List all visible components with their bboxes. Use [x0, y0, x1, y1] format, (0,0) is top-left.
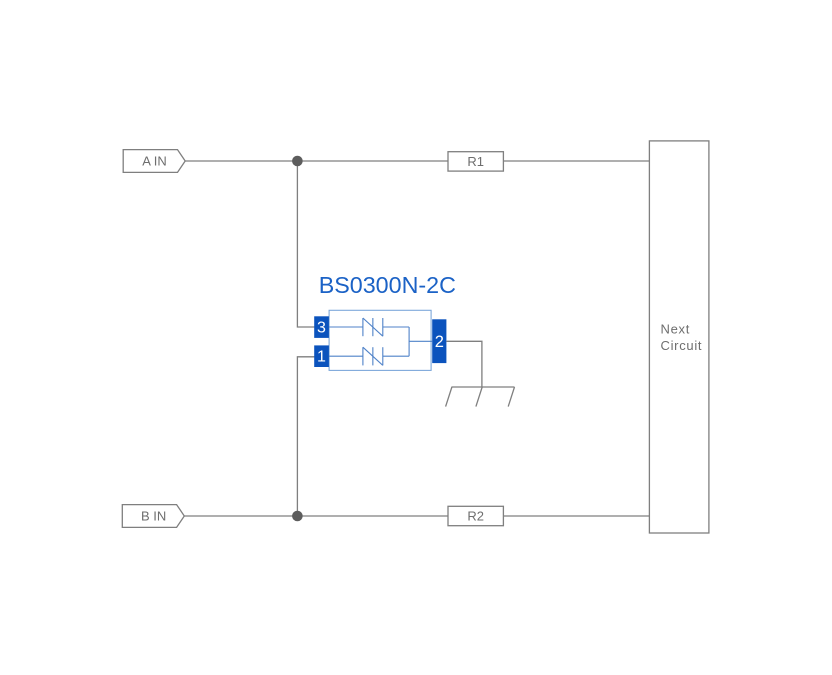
svg-text:Circuit: Circuit	[661, 338, 703, 353]
svg-text:2: 2	[435, 333, 444, 351]
svg-text:R2: R2	[467, 509, 484, 524]
svg-text:A IN: A IN	[142, 153, 167, 168]
svg-text:3: 3	[317, 319, 326, 336]
svg-text:BS0300N-2C: BS0300N-2C	[319, 272, 456, 298]
svg-text:R1: R1	[467, 154, 484, 169]
svg-text:Next: Next	[661, 322, 691, 337]
svg-text:1: 1	[317, 349, 326, 366]
svg-text:B IN: B IN	[141, 508, 166, 523]
